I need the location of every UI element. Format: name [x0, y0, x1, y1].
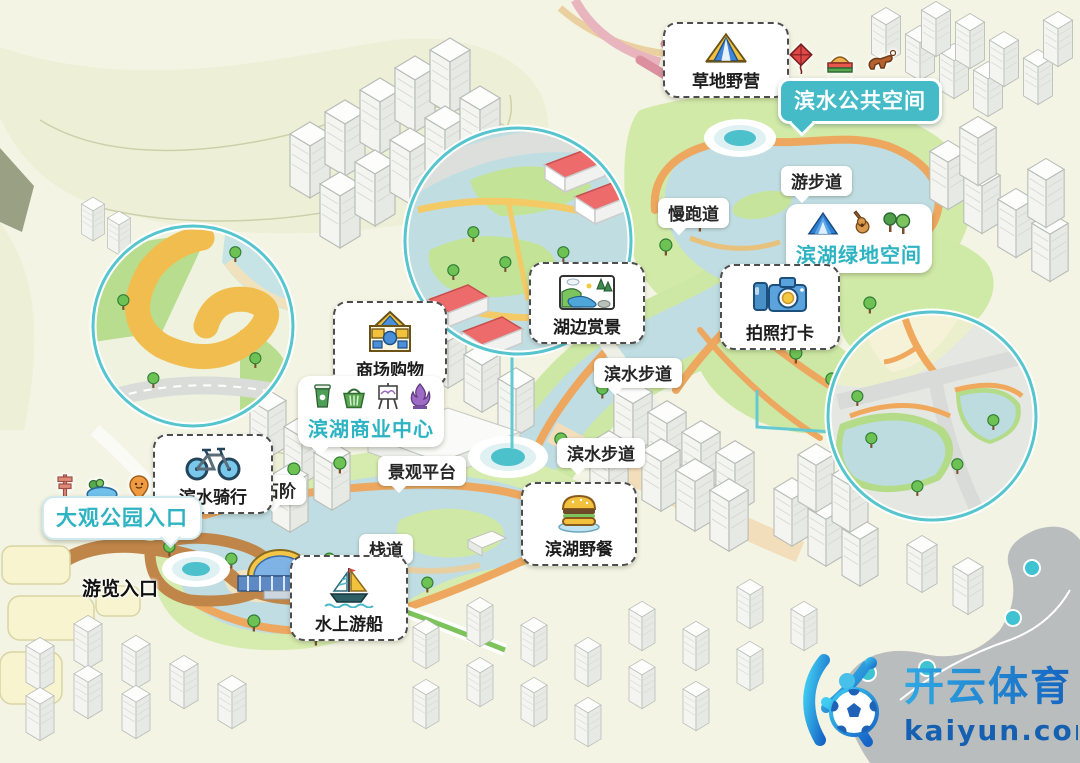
- trees-icon: [882, 210, 912, 236]
- badge-label: 滨湖商业中心: [308, 413, 434, 442]
- lake-scenery-icon: [559, 271, 615, 311]
- feature-card-lake-view: 湖边赏景: [529, 262, 645, 344]
- burger-icon: [555, 491, 603, 533]
- badge-public-space: 滨水公共空间: [778, 78, 942, 124]
- kaiyun-site-text: kaiyun.com: [904, 714, 1078, 747]
- feature-card-shopping: 商场购物: [333, 301, 447, 387]
- label-waterfront-walkway-lower: 滨水步道: [557, 438, 645, 468]
- label-jogging-track: 慢跑道: [658, 198, 729, 228]
- feature-card-camping: 草地野营: [663, 22, 789, 98]
- kaiyun-brand-text: 开云体育: [904, 664, 1072, 710]
- badge-commercial-center: 滨湖商业中心: [298, 376, 444, 447]
- feature-label: 拍照打卡: [746, 319, 814, 344]
- inset-circle-left: [93, 226, 294, 426]
- sculpture-icon: [409, 382, 431, 410]
- badge-label: 大观公园入口: [56, 506, 188, 530]
- bicycle-icon: [184, 443, 242, 481]
- inset-circle-right: [828, 312, 1038, 522]
- shop-icon: [364, 310, 416, 354]
- sandcastle-icon: [825, 48, 855, 74]
- kaiyun-k-mark: [809, 657, 880, 742]
- camera-icon: [750, 273, 810, 317]
- badge-green-space: 滨湖绿地空间: [786, 204, 932, 273]
- guitar-icon: [847, 209, 874, 236]
- dog-icon: [866, 48, 896, 74]
- feature-label: 湖边赏景: [553, 313, 621, 338]
- easel-icon: [375, 382, 401, 410]
- green-space-icons: [807, 209, 912, 236]
- feature-card-picnic: 滨湖野餐: [521, 482, 637, 566]
- feature-label: 滨湖野餐: [545, 535, 613, 560]
- public-space-icons: [788, 42, 896, 74]
- feature-label: 水上游船: [315, 610, 383, 635]
- commercial-center-icons: [312, 381, 431, 410]
- park-map-screenshot: 草地野营 滨水公共空间 游步道 慢跑道 滨水步道 滨水步道 石阶 景观平台 栈道: [0, 0, 1080, 763]
- sailboat-icon: [322, 564, 376, 608]
- feature-label: 草地野营: [692, 67, 760, 92]
- kaiyun-logo: 开云体育 kaiyun.com: [792, 650, 1078, 754]
- shopping-basket-icon: [341, 385, 367, 410]
- feature-card-boat: 水上游船: [290, 555, 408, 641]
- label-viewing-platform: 景观平台: [378, 456, 466, 486]
- badge-label: 滨水公共空间: [794, 89, 926, 113]
- label-walking-trail: 游步道: [781, 166, 852, 196]
- tent-icon: [704, 31, 748, 65]
- kaiyun-watermark: 开云体育 kaiyun.com: [792, 650, 1078, 758]
- blue-tent-icon: [807, 211, 839, 236]
- label-waterfront-walkway-upper: 滨水步道: [594, 358, 682, 388]
- coffee-cup-icon: [312, 381, 333, 410]
- badge-park-entrance: 大观公园入口: [42, 496, 202, 540]
- feature-card-photo: 拍照打卡: [720, 264, 840, 350]
- kite-icon: [788, 42, 814, 74]
- label-tour-entrance: 游览入口: [82, 574, 158, 601]
